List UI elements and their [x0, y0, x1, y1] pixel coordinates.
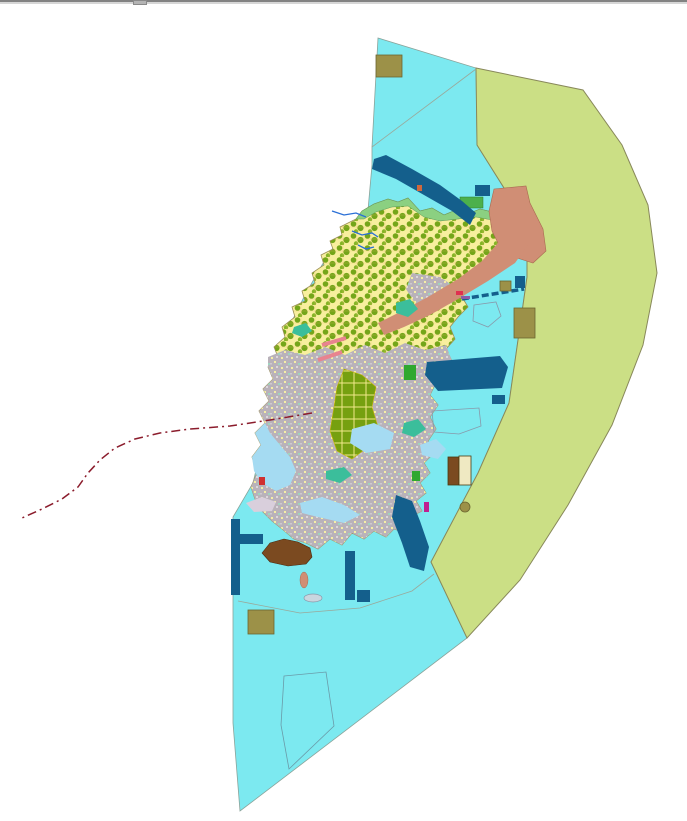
khaki-site-south: [248, 610, 274, 634]
harbor-rect-north-2: [456, 204, 463, 212]
harbor-rect-north-1: [475, 185, 490, 196]
beige-site-east: [459, 456, 471, 485]
harbor-east-basin: [425, 356, 508, 391]
khaki-buoy-southeast: [460, 502, 470, 512]
harbor-rect-east-upper: [515, 276, 525, 288]
map-canvas[interactable]: [0, 5, 687, 821]
islet-salmon-south: [300, 572, 308, 588]
khaki-site-north: [376, 55, 402, 77]
islet-gray-south: [304, 594, 322, 602]
harbor-bar-south: [345, 551, 355, 600]
marker-orange-sea-north: [417, 185, 422, 191]
marker-magenta-southeast: [424, 502, 429, 512]
khaki-site-east-large: [514, 308, 535, 338]
brown-site-east: [448, 457, 459, 485]
map-viewport[interactable]: [0, 0, 687, 821]
marker-red-east: [456, 291, 463, 295]
harbor-bar-southwest: [231, 519, 240, 595]
window-top-divider: [0, 0, 687, 5]
marker-red-west: [259, 477, 265, 485]
khaki-site-east-small: [500, 281, 511, 291]
green-site-2: [412, 471, 420, 481]
harbor-arm-southwest: [240, 534, 263, 544]
harbor-square-south: [357, 590, 370, 602]
divider-drag-handle[interactable]: [133, 0, 147, 5]
harbor-rect-east-lower: [492, 395, 505, 404]
green-site-1: [404, 365, 416, 380]
marker-purple-east: [461, 296, 470, 299]
